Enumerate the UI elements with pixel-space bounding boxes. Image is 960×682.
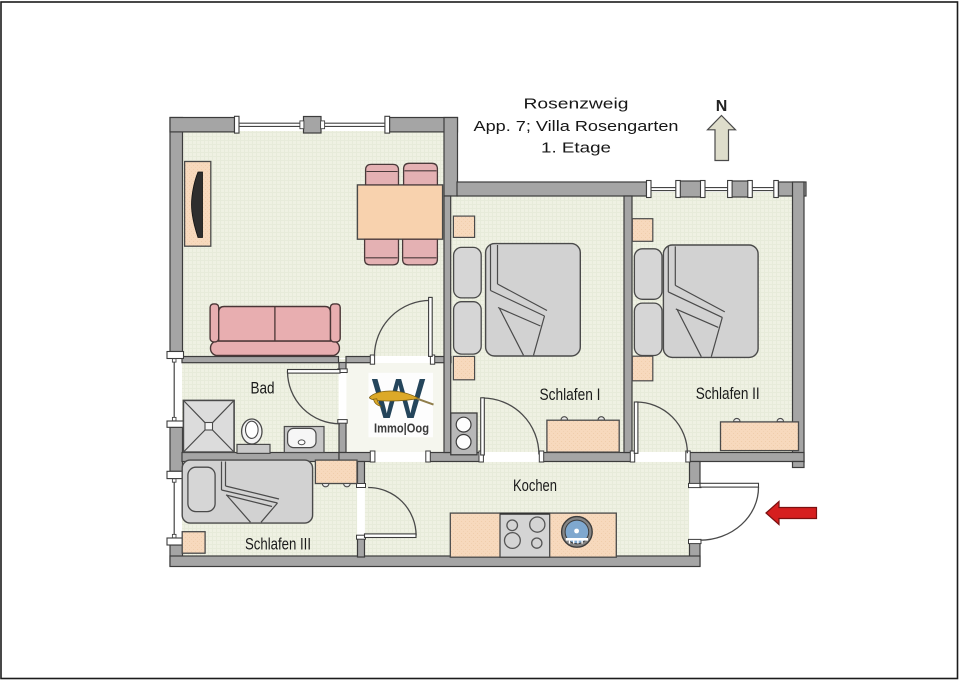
svg-text:Immo|Oog: Immo|Oog	[374, 422, 429, 436]
svg-text:Schlafen III: Schlafen III	[245, 534, 311, 553]
svg-text:Bad: Bad	[251, 378, 275, 397]
svg-text:1. Etage: 1. Etage	[541, 139, 611, 156]
svg-text:App. 7; Villa Rosengarten: App. 7; Villa Rosengarten	[474, 118, 679, 135]
svg-text:Schlafen II: Schlafen II	[696, 384, 760, 403]
svg-text:Kochen: Kochen	[513, 476, 557, 495]
svg-text:Schlafen I: Schlafen I	[540, 385, 601, 404]
svg-text:N: N	[716, 98, 728, 115]
svg-text:Rosenzweig: Rosenzweig	[524, 95, 629, 112]
